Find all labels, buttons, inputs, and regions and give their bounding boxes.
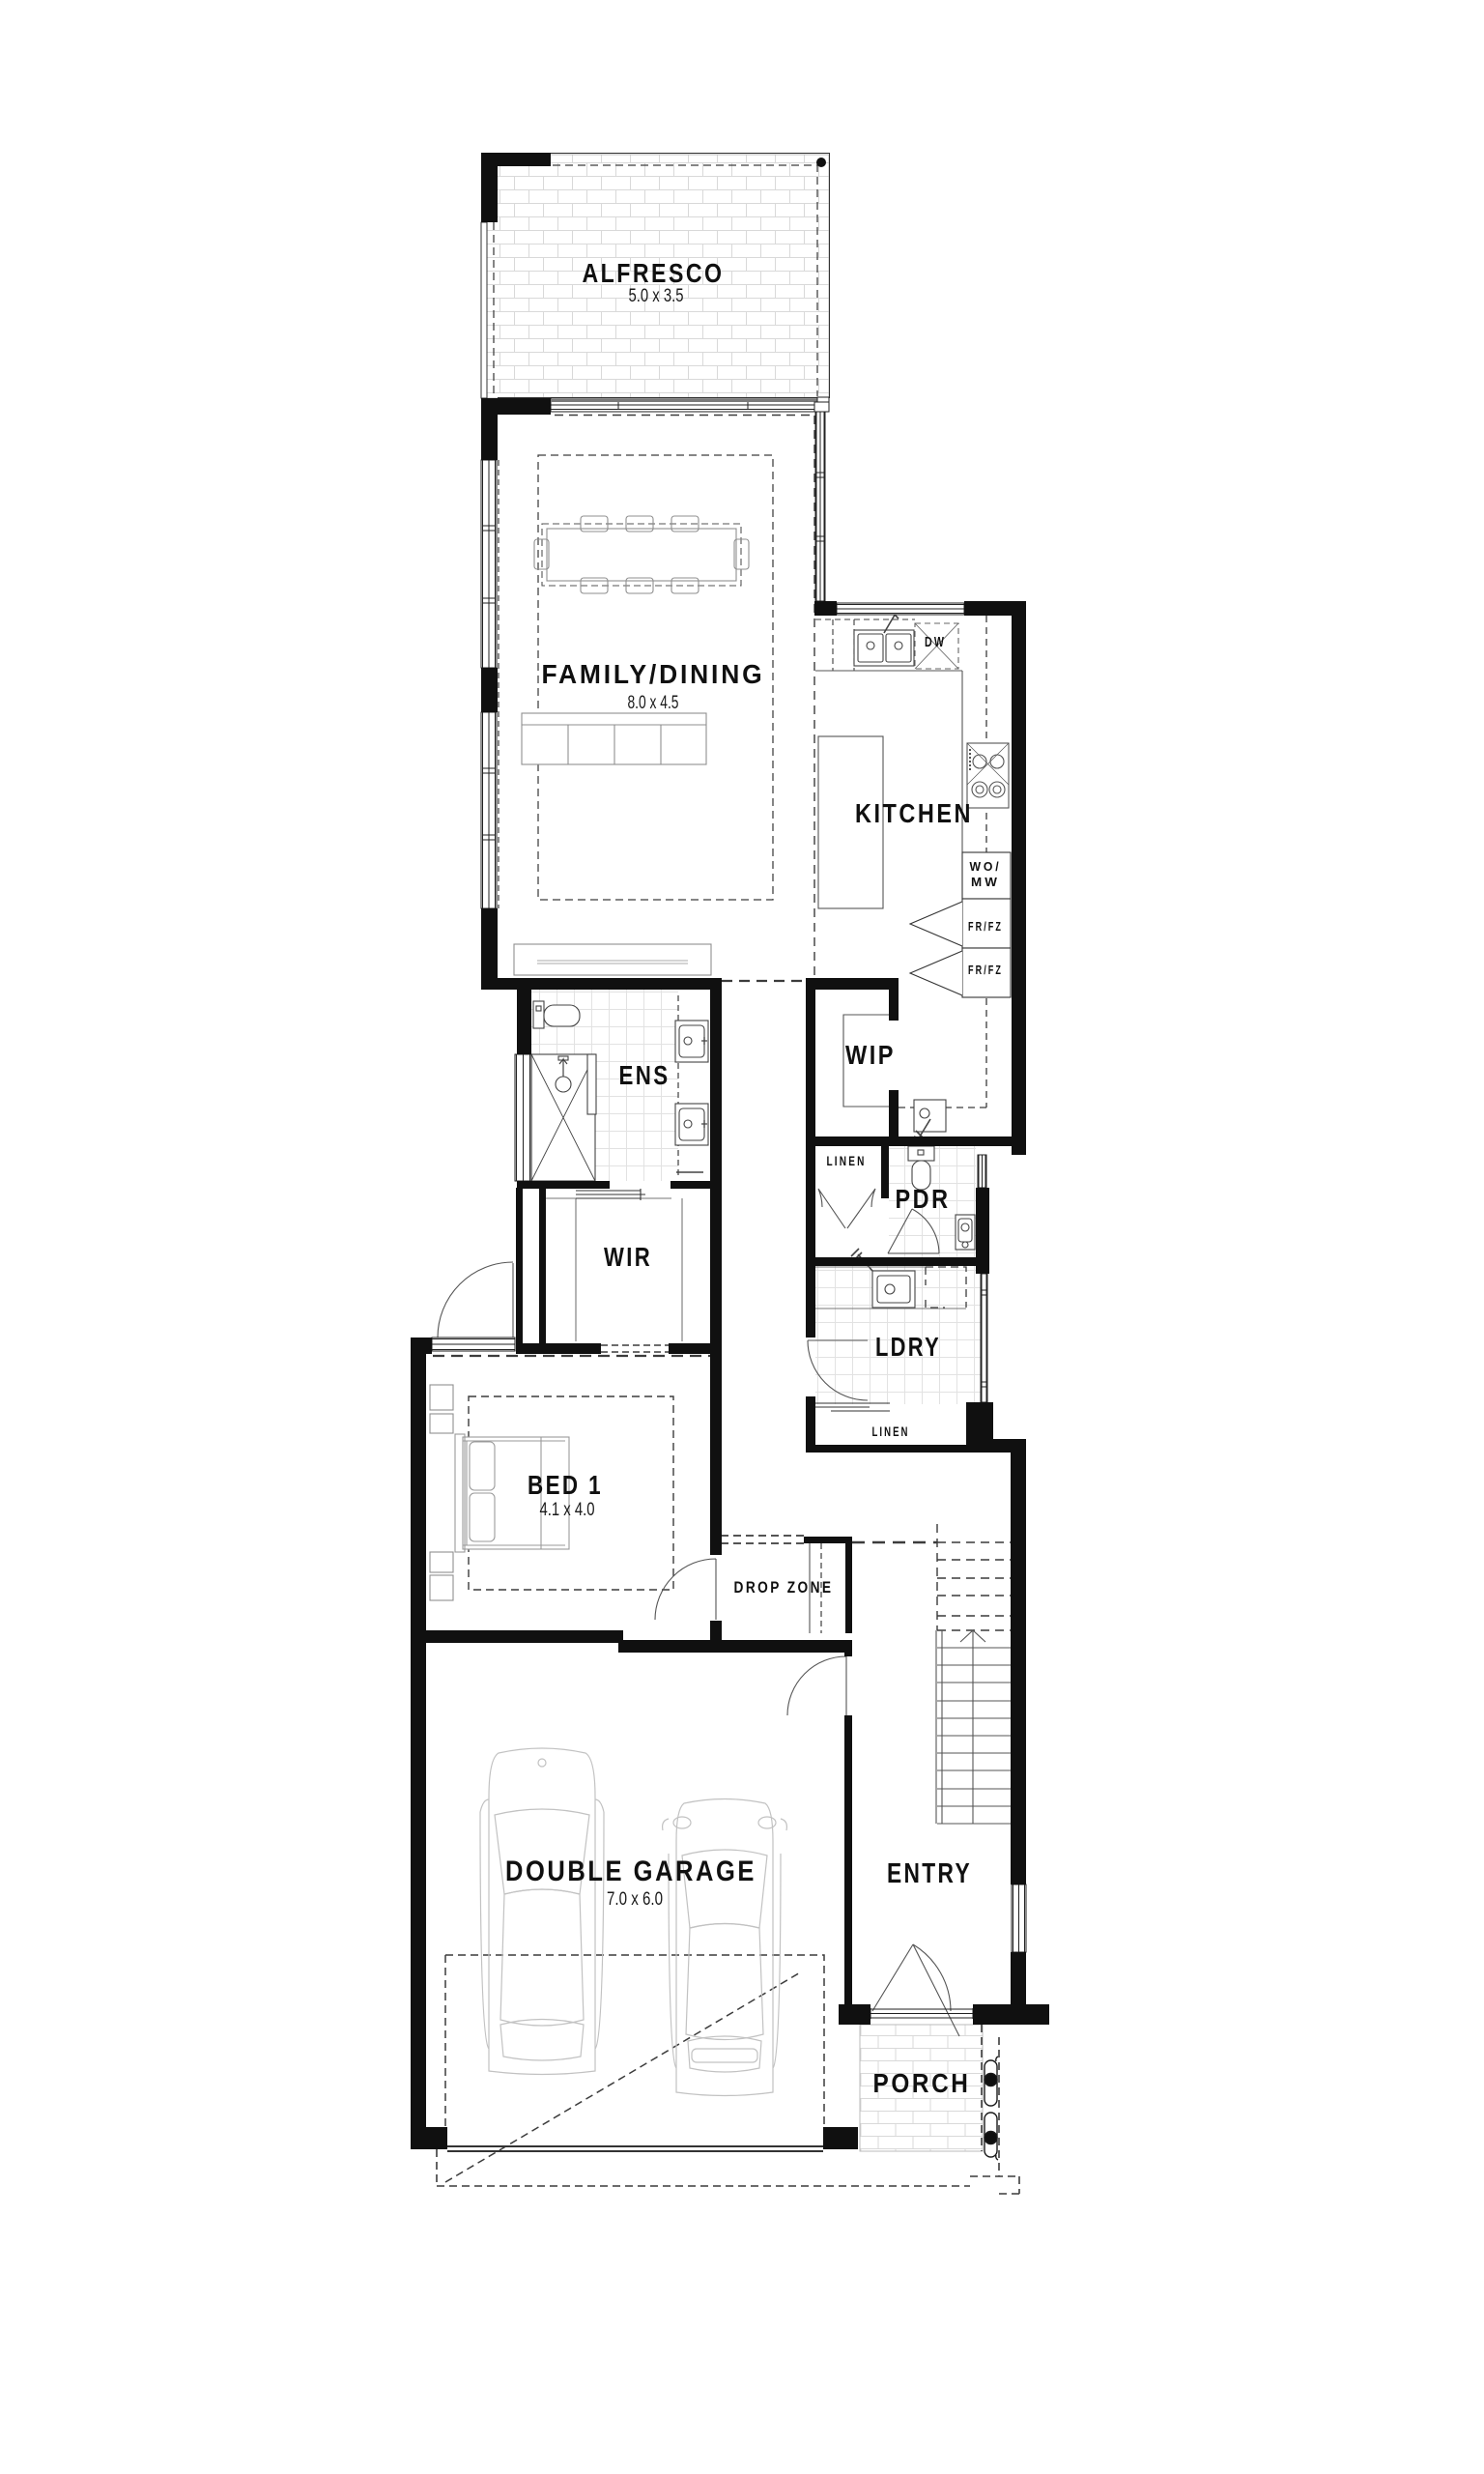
svg-text:PDR: PDR <box>896 1184 951 1214</box>
svg-text:WIP: WIP <box>845 1040 896 1070</box>
svg-text:FR/FZ: FR/FZ <box>968 963 1003 977</box>
svg-text:DW: DW <box>925 634 946 650</box>
svg-text:LDRY: LDRY <box>875 1332 941 1362</box>
svg-text:7.0 x 6.0: 7.0 x 6.0 <box>607 1889 663 1910</box>
svg-text:MW: MW <box>971 875 1000 889</box>
svg-text:FAMILY/DINING: FAMILY/DINING <box>542 659 765 689</box>
svg-text:4.1 x 4.0: 4.1 x 4.0 <box>540 1500 595 1520</box>
svg-text:PORCH: PORCH <box>873 2068 971 2098</box>
svg-text:ALFRESCO: ALFRESCO <box>583 258 725 288</box>
svg-text:ENTRY: ENTRY <box>887 1858 972 1889</box>
svg-text:DROP ZONE: DROP ZONE <box>734 1578 834 1597</box>
svg-text:LINEN: LINEN <box>872 1424 910 1439</box>
svg-text:KITCHEN: KITCHEN <box>855 798 973 828</box>
svg-text:WIR: WIR <box>604 1242 652 1272</box>
svg-text:5.0 x 3.5: 5.0 x 3.5 <box>629 286 684 306</box>
svg-text:DOUBLE GARAGE: DOUBLE GARAGE <box>505 1855 756 1887</box>
svg-text:8.0 x 4.5: 8.0 x 4.5 <box>628 693 679 713</box>
svg-text:BED 1: BED 1 <box>528 1470 603 1500</box>
svg-text:ENS: ENS <box>619 1060 671 1090</box>
svg-text:WO/: WO/ <box>970 859 1002 874</box>
svg-text:LINEN: LINEN <box>827 1153 867 1168</box>
svg-text:FR/FZ: FR/FZ <box>968 919 1003 934</box>
